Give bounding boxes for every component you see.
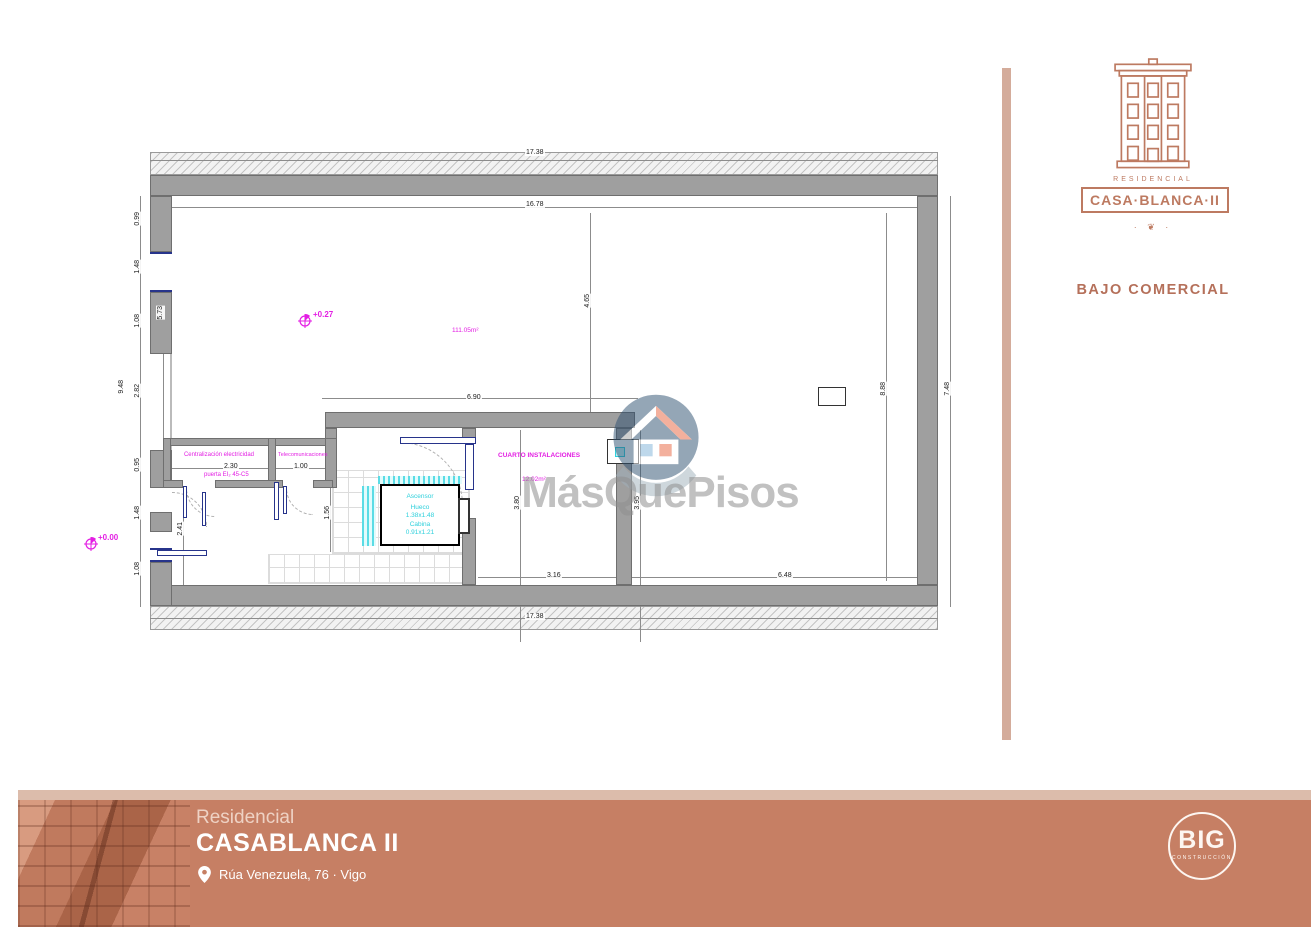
- dim-inner-span: 6.90: [466, 394, 482, 401]
- dim-line: [590, 213, 591, 412]
- wall-left-seg4: [150, 512, 172, 532]
- dim-line: [950, 196, 951, 607]
- footer-bar: Residencial CASABLANCA II Rúa Venezuela,…: [18, 790, 1311, 927]
- lift-cabin-label: Cabina: [382, 521, 458, 529]
- fixture-instal-inner: [615, 447, 625, 457]
- fixture-box-right: [818, 387, 846, 406]
- dim-open-width: 6.48: [777, 572, 793, 579]
- wall-inner-top: [325, 412, 635, 428]
- lift-door: [458, 498, 470, 534]
- area-main-label: 111.05m²: [452, 327, 479, 334]
- big-logo-text: BIG: [1170, 828, 1234, 853]
- door-leaf-entrance: [202, 492, 206, 526]
- dim-inner-left-upper: 5.73: [156, 306, 165, 320]
- watermark-brand: MásQuePisos: [505, 468, 815, 518]
- dim-instal-height-right: 3.95: [633, 496, 642, 510]
- dim-left-seg4: 2.82: [133, 384, 142, 398]
- divider-strip: [1002, 68, 1011, 740]
- dim-top-outer: 17.38: [525, 149, 545, 156]
- lift-hatch-top: [378, 476, 462, 484]
- side-brand-text: CASA·BLANCA·II: [1081, 187, 1229, 213]
- wall-left-seg5: [150, 562, 172, 606]
- dim-line: [330, 488, 331, 552]
- wall-utility-bottom3: [313, 480, 333, 488]
- wall-right: [917, 196, 938, 585]
- dim-left-seg5: 0.95: [133, 458, 142, 472]
- footer-brand: Residencial CASABLANCA II: [196, 808, 399, 858]
- dim-left-total: 9.48: [117, 380, 126, 394]
- lift-cabin-size: 0.91x1.21: [382, 529, 458, 537]
- dim-instal-width: 3.16: [546, 572, 562, 579]
- wall-utility-top: [163, 438, 333, 446]
- dim-line: [478, 577, 917, 578]
- footer-address: Rúa Venezuela, 76 · Vigo: [219, 867, 366, 882]
- wall-top: [150, 175, 938, 196]
- side-residencial: RESIDENCIAL: [1083, 176, 1223, 183]
- lift-shaft-label: Hueco: [382, 504, 458, 512]
- dim-line: [520, 430, 521, 642]
- dim-instal-height-left: 3.80: [513, 496, 522, 510]
- building-logo-icon: [1100, 58, 1206, 176]
- dim-line: [640, 430, 641, 642]
- dim-right-inner: 8.88: [879, 382, 888, 396]
- lift-title: Ascensor: [382, 493, 458, 501]
- dim-telecom-width: 1.00: [293, 463, 309, 470]
- frame-lobby-left: [274, 482, 279, 520]
- side-brand-banner: CASA·BLANCA·II: [1081, 187, 1225, 213]
- dim-left-seg6: 1.48: [133, 506, 142, 520]
- location-pin-icon: [198, 866, 211, 883]
- door-leaf-elec: [183, 486, 187, 518]
- dim-line: [150, 160, 938, 161]
- door-arc-telecom: [286, 488, 313, 515]
- wall-left-seg1: [150, 196, 172, 252]
- wall-utility-bottom1: [163, 480, 183, 488]
- footer-strip: [18, 790, 1311, 800]
- stair-grid-lower: [268, 554, 470, 584]
- footer-address-row: Rúa Venezuela, 76 · Vigo: [198, 866, 366, 883]
- window-left-upper: [150, 252, 172, 292]
- level-marker-icon: [298, 314, 312, 328]
- wall-utility-bottom2: [215, 480, 283, 488]
- dim-inner-left-lower: 2.41: [176, 522, 185, 536]
- big-logo-subtext: CONSTRUCCIÓN: [1170, 855, 1234, 861]
- dim-left-seg2: 1.48: [133, 260, 142, 274]
- level-main-label: +0.27: [313, 310, 333, 319]
- footer-brand-line1: Residencial: [196, 808, 399, 829]
- dim-line: [140, 196, 141, 607]
- lift-shaft-size: 1.38x1.48: [382, 512, 458, 520]
- door-frame-instal: [465, 444, 474, 490]
- footer-photo: [18, 800, 190, 927]
- room-telecom-label: Telecomunicaciones: [278, 452, 328, 458]
- facade-open-edge: [170, 354, 172, 450]
- dim-lobby-depth: 1.56: [323, 506, 332, 520]
- wall-left-seg2: [150, 292, 172, 354]
- lift-hatch-left: [362, 486, 376, 546]
- dim-elec-width: 2.30: [223, 463, 239, 470]
- frame-lobby-top: [400, 437, 476, 444]
- room-elec-label: Centralización electricidad: [173, 452, 265, 459]
- dim-left-seg7: 1.08: [133, 562, 142, 576]
- dim-line: [886, 213, 887, 581]
- frame-entry-sill: [157, 550, 207, 556]
- elevator-box: Ascensor Hueco 1.38x1.48 Cabina 0.91x1.2…: [380, 484, 460, 546]
- dim-left-seg3: 1.08: [133, 314, 142, 328]
- dim-right-outer: 7.48: [943, 382, 952, 396]
- room-elec-door-label: puerta EI₂ 45-C5: [204, 472, 249, 479]
- wall-bottom: [150, 585, 938, 606]
- footer-brand-line2: CASABLANCA II: [196, 829, 399, 858]
- dim-top-inner: 16.78: [525, 201, 545, 208]
- dim-left-seg1: 0.99: [133, 212, 142, 226]
- room-instal-area-label: 12.02m²: [522, 476, 546, 483]
- side-ornament: · ❦ ·: [1081, 222, 1225, 233]
- dim-mid-height: 4.65: [583, 294, 592, 308]
- room-instal-label: CUARTO INSTALACIONES: [498, 452, 580, 459]
- level-entry-icon: [84, 537, 98, 551]
- floor-plan: Ascensor Hueco 1.38x1.48 Cabina 0.91x1.2…: [0, 0, 1000, 760]
- big-logo: BIG CONSTRUCCIÓN: [1168, 812, 1236, 880]
- door-leaf-telecom: [283, 486, 287, 514]
- side-caption: BAJO COMERCIAL: [1075, 282, 1231, 298]
- level-entry-label: +0.00: [98, 533, 118, 542]
- dim-bottom-outer: 17.38: [525, 613, 545, 620]
